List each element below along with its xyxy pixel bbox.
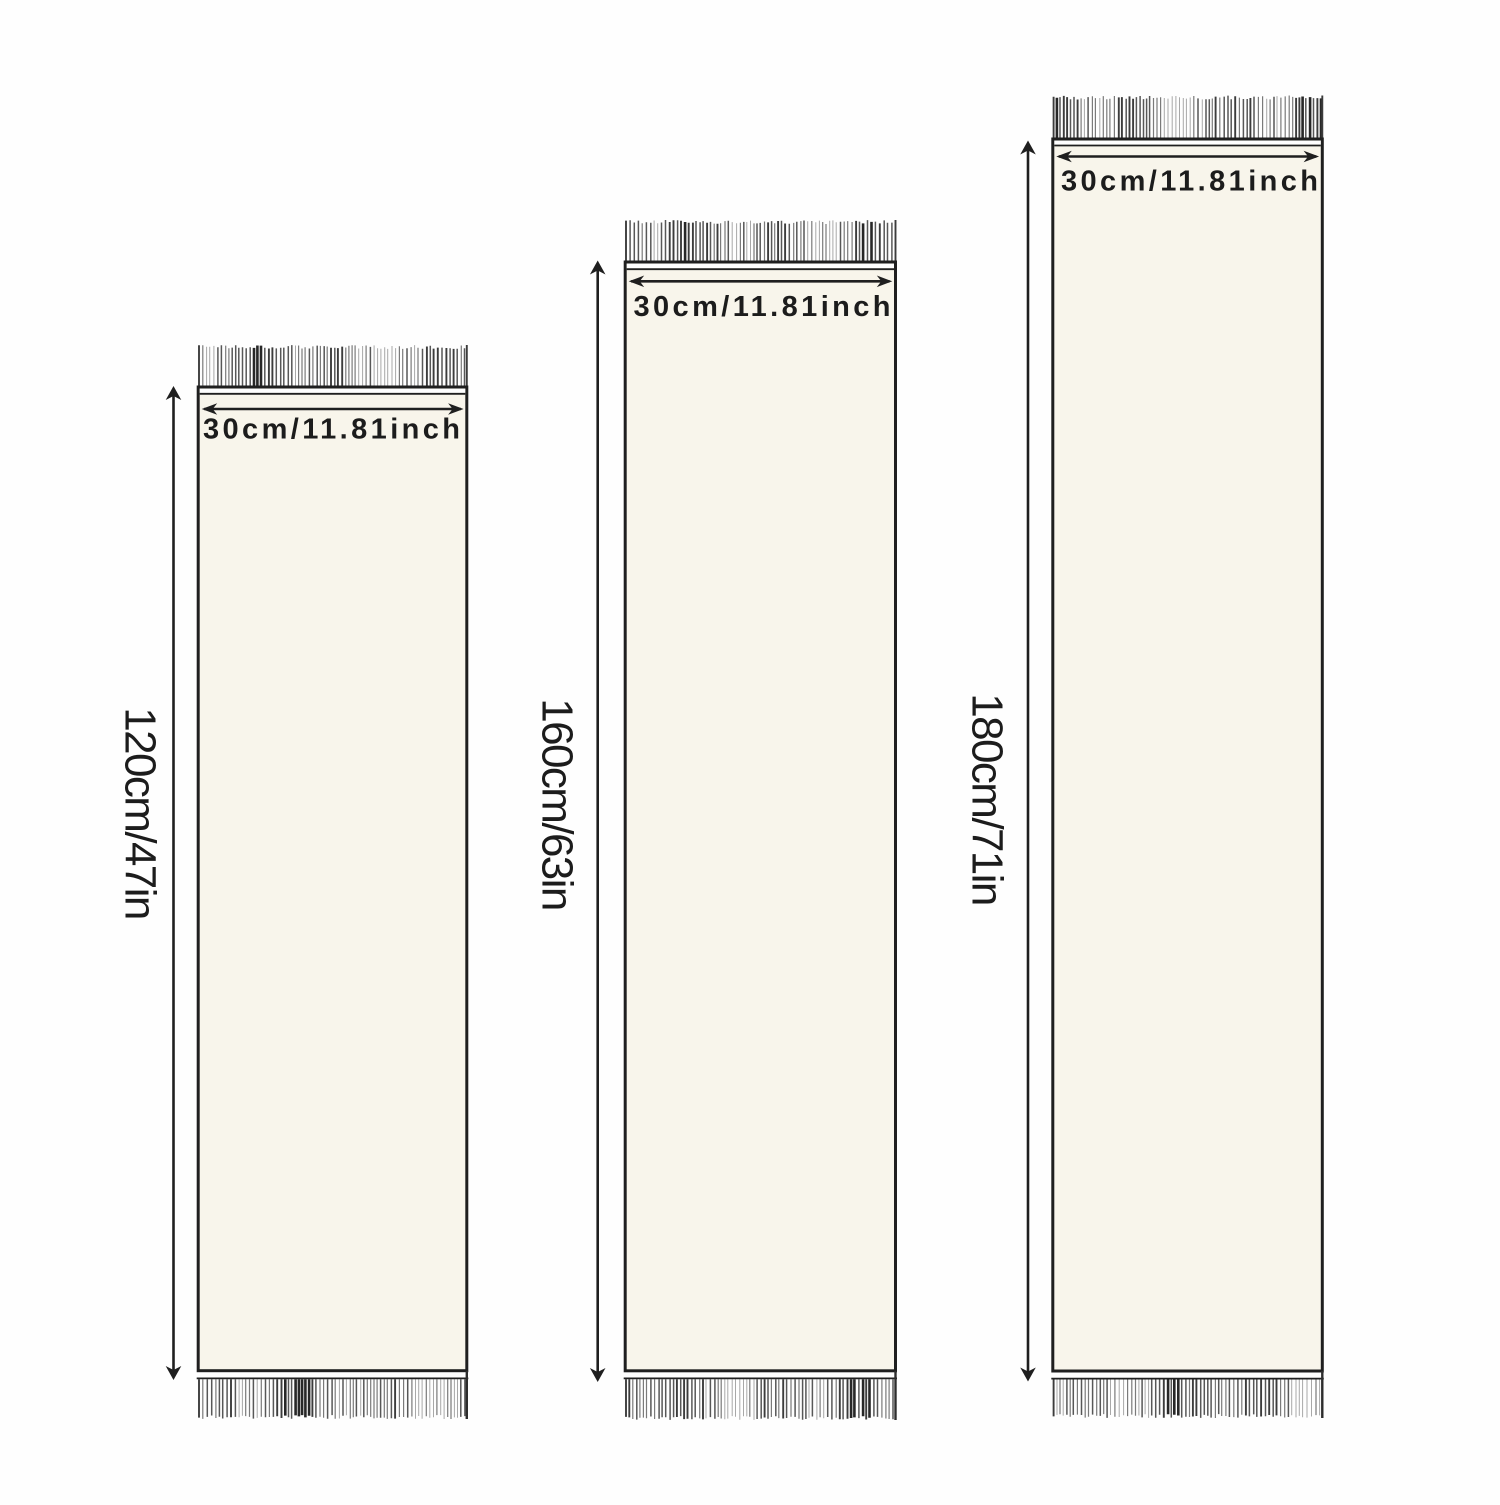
svg-text:30cm/11.81inch: 30cm/11.81inch	[634, 291, 894, 323]
svg-text:180cm/71in: 180cm/71in	[963, 693, 1012, 904]
svg-text:160cm/63in: 160cm/63in	[533, 698, 582, 909]
svg-text:30cm/11.81inch: 30cm/11.81inch	[203, 414, 463, 446]
svg-text:120cm/47in: 120cm/47in	[116, 707, 165, 918]
svg-text:30cm/11.81inch: 30cm/11.81inch	[1061, 166, 1321, 198]
